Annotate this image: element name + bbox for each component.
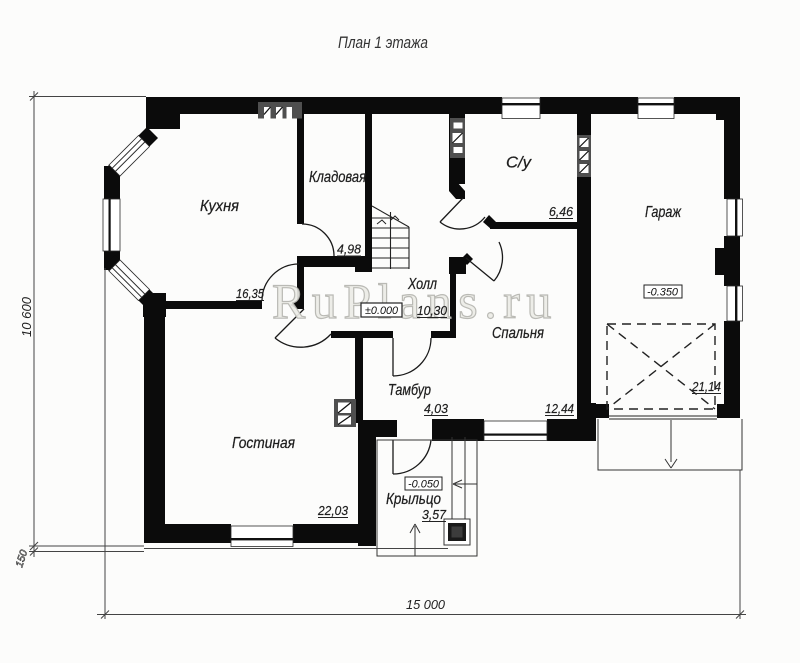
svg-text:4,98: 4,98 (337, 242, 362, 257)
svg-text:Крыльцо: Крыльцо (386, 491, 441, 508)
svg-text:Спальня: Спальня (492, 325, 544, 342)
svg-text:С/у: С/у (506, 155, 532, 172)
svg-text:Гараж: Гараж (645, 204, 682, 221)
svg-text:15 000: 15 000 (406, 598, 445, 612)
svg-text:16,35: 16,35 (236, 286, 265, 301)
svg-text:3,57: 3,57 (422, 507, 447, 522)
svg-text:±0.000: ±0.000 (365, 305, 399, 317)
svg-text:10 600: 10 600 (20, 297, 34, 337)
svg-text:4,03: 4,03 (424, 401, 449, 416)
svg-text:План 1 этажа: План 1 этажа (338, 33, 428, 52)
svg-text:22,03: 22,03 (317, 503, 349, 518)
svg-text:Холл: Холл (407, 276, 437, 293)
svg-text:21,14: 21,14 (691, 379, 721, 394)
svg-text:Кладовая: Кладовая (309, 169, 366, 186)
svg-text:6,46: 6,46 (549, 204, 574, 219)
svg-text:-0.350: -0.350 (647, 287, 679, 299)
svg-text:Тамбур: Тамбур (388, 382, 431, 399)
svg-text:12,44: 12,44 (545, 401, 574, 416)
svg-text:Гостиная: Гостиная (232, 435, 295, 452)
svg-text:Кухня: Кухня (200, 198, 239, 215)
svg-text:-0.050: -0.050 (408, 479, 440, 491)
svg-text:10,30: 10,30 (417, 303, 448, 318)
